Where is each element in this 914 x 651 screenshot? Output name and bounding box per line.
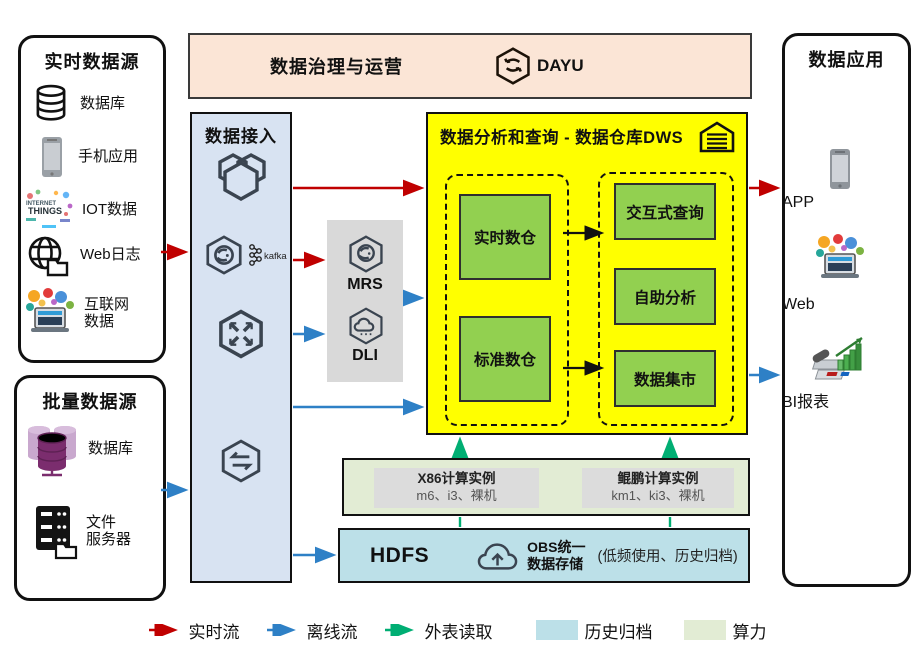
mrs-label: MRS (327, 276, 403, 294)
source-row-internet: 互联网 数据 (24, 288, 129, 338)
batch-sources-title: 批量数据源 (17, 388, 163, 414)
kafka-logo: kafka (247, 242, 287, 268)
kunpeng-detail: km1、ki3、裸机 (611, 488, 704, 504)
red-arrow-icon (148, 624, 182, 636)
green-arrow-icon (384, 624, 418, 636)
legend-label: 历史归档 (585, 618, 653, 643)
kunpeng-instance-box: 鲲鹏计算实例 km1、ki3、裸机 (582, 468, 734, 508)
data-mart-box: 数据集市 (614, 350, 716, 407)
batch-sources-box: 批量数据源 (14, 375, 166, 601)
database-icon (30, 82, 72, 126)
source-row-batch-database: 数据库 (24, 418, 133, 480)
mobile-phone-icon (34, 134, 70, 180)
legend-item-realtime: 实时流 (148, 618, 240, 643)
web-bubbles-icon (814, 232, 866, 286)
cdm-icon (218, 438, 264, 484)
source-row-mobile: 手机应用 (34, 134, 138, 180)
hdfs-label: HDFS (370, 544, 429, 568)
source-label: 文件 服务器 (86, 514, 131, 549)
legend-label: 离线流 (307, 618, 358, 643)
compute-swatch (684, 620, 726, 640)
iot-text: THINGS (28, 206, 62, 216)
interactive-query-box: 交互式查询 (614, 183, 716, 240)
legend-item-archive: 历史归档 (536, 618, 653, 643)
dli-icon (346, 306, 386, 346)
kafka-logo-text: kafka (264, 251, 287, 262)
storage-strip: HDFS OBS统一 数据存储 (低频使用、历史归档) (338, 528, 750, 583)
bi-report-icon (810, 334, 870, 384)
legend: 实时流 离线流 外表读取 历史归档 算力 (0, 612, 914, 648)
blue-arrow-icon (266, 624, 300, 636)
globe-folder-icon (24, 232, 72, 278)
legend-item-offline: 离线流 (266, 618, 358, 643)
standard-warehouse-box: 标准数仓 (459, 316, 551, 402)
legend-item-external: 外表读取 (384, 618, 493, 643)
self-service-analysis-box: 自助分析 (614, 268, 716, 325)
web-label: Web (782, 296, 905, 314)
governance-title: 数据治理与运营 (270, 53, 403, 79)
x86-instance-box: X86计算实例 m6、i3、裸机 (374, 468, 539, 508)
realtime-warehouse-label: 实时数仓 (474, 226, 536, 248)
legend-label: 实时流 (189, 618, 240, 643)
dws-title: 数据分析和查询 - 数据仓库DWS (440, 124, 683, 148)
source-row-weblog: Web日志 (24, 232, 141, 278)
dayu-label: DAYU (537, 56, 584, 76)
obs-label: OBS统一 数据存储 (527, 539, 585, 573)
app-phone-icon (822, 146, 858, 192)
source-row-iot: INTERNET THINGS IOT数据 (22, 188, 137, 232)
x86-title: X86计算实例 (417, 471, 495, 488)
purple-database-icon (24, 418, 80, 480)
internet-bubbles-icon (24, 288, 76, 338)
source-row-database: 数据库 (30, 82, 125, 126)
app-label: APP (782, 194, 905, 212)
drs-icon (215, 146, 267, 202)
dayu-brand: DAYU (493, 45, 584, 87)
source-label: 数据库 (88, 440, 133, 457)
dli-label: DLI (327, 347, 403, 365)
legend-label: 外表读取 (425, 618, 493, 643)
source-label: 手机应用 (78, 148, 138, 165)
mrs-icon (346, 234, 386, 274)
interactive-query-label: 交互式查询 (626, 201, 704, 223)
legend-label: 算力 (733, 618, 767, 643)
architecture-diagram: 实时数据源 数据库 手机应用 (0, 0, 914, 651)
kafka-icon: kafka (203, 234, 287, 276)
file-server-icon (30, 502, 78, 560)
bi-label: BI报表 (782, 388, 905, 412)
applications-title: 数据应用 (785, 46, 908, 72)
kunpeng-title: 鲲鹏计算实例 (618, 471, 699, 488)
dis-icon (215, 308, 267, 360)
compute-strip: X86计算实例 m6、i3、裸机 鲲鹏计算实例 km1、ki3、裸机 (342, 458, 750, 516)
warehouse-icon (698, 120, 736, 154)
realtime-warehouse-box: 实时数仓 (459, 194, 551, 280)
data-mart-label: 数据集市 (634, 368, 696, 390)
storage-note: (低频使用、历史归档) (598, 545, 738, 566)
source-label: 互联网 数据 (84, 296, 129, 331)
legend-item-compute: 算力 (684, 618, 767, 643)
source-row-fileserver: 文件 服务器 (30, 502, 131, 560)
source-label: IOT数据 (82, 201, 137, 218)
standard-warehouse-label: 标准数仓 (474, 348, 536, 370)
archive-swatch (536, 620, 578, 640)
source-label: 数据库 (80, 95, 125, 112)
ingestion-title: 数据接入 (192, 122, 290, 147)
dayu-hexagon-icon (493, 45, 533, 87)
dws-box: 数据分析和查询 - 数据仓库DWS 实时数仓 标准数仓 交互式查询 自助分析 数… (426, 112, 748, 435)
obs-cloud-icon (475, 537, 521, 575)
iot-wordcloud-icon: INTERNET THINGS (22, 188, 74, 232)
source-label: Web日志 (80, 246, 141, 263)
realtime-sources-title: 实时数据源 (21, 48, 163, 74)
governance-bar: 数据治理与运营 DAYU (188, 33, 752, 99)
x86-detail: m6、i3、裸机 (416, 488, 496, 504)
self-service-analysis-label: 自助分析 (634, 286, 696, 308)
